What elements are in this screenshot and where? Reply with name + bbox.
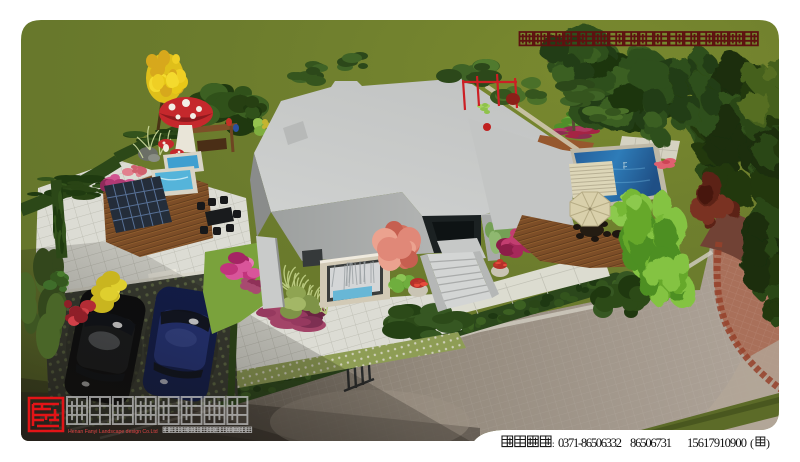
svg-text:(: (: [750, 436, 754, 450]
svg-text:86506731: 86506731: [630, 436, 672, 450]
svg-text:0371-86506332: 0371-86506332: [558, 436, 622, 450]
svg-text:): ): [766, 436, 770, 450]
svg-text::: :: [552, 439, 555, 449]
svg-text:15617910900: 15617910900: [687, 436, 747, 450]
svg-text:Henan Fanyi Landscape design C: Henan Fanyi Landscape design Co.Ltd: [68, 429, 158, 435]
